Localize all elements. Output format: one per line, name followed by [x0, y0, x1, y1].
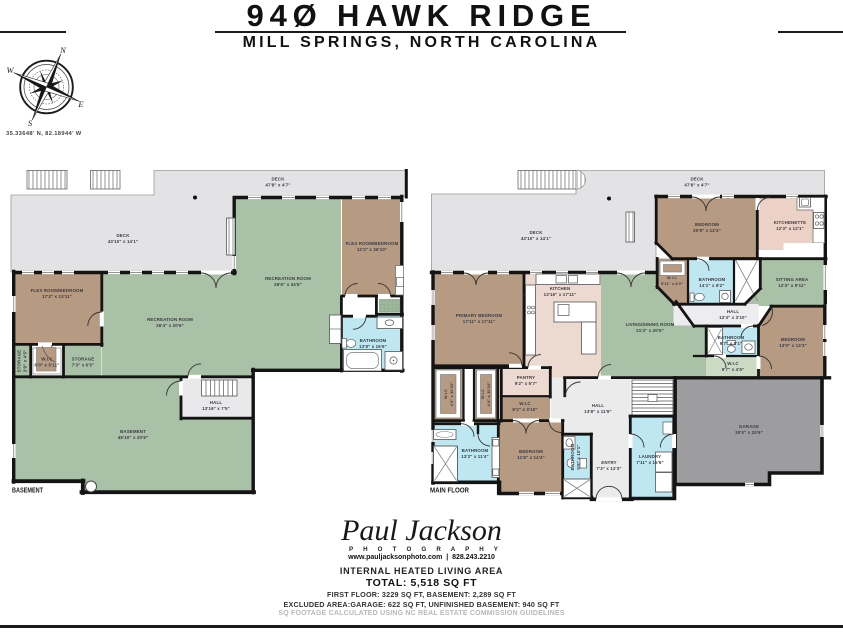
svg-text:11'8" x 14'4": 11'8" x 14'4": [517, 455, 545, 460]
svg-text:DECK: DECK: [529, 230, 543, 235]
svg-text:BASEMENT: BASEMENT: [12, 486, 43, 495]
svg-text:13'8" x 11'9": 13'8" x 11'9": [584, 409, 612, 414]
svg-text:9'7" x 4'5": 9'7" x 4'5": [722, 367, 745, 372]
svg-text:7'11" x 15'6": 7'11" x 15'6": [636, 460, 664, 465]
svg-text:20'8" x 12'4": 20'8" x 12'4": [693, 228, 721, 233]
svg-text:43'10" x 14'1": 43'10" x 14'1": [108, 239, 138, 244]
svg-text:26'6" x 34'6": 26'6" x 34'6": [274, 282, 302, 287]
svg-text:W.I.C: W.I.C: [480, 389, 485, 399]
svg-text:13'16" x 17'11": 13'16" x 17'11": [544, 292, 577, 297]
svg-text:12'8" x 16'6": 12'8" x 16'6": [359, 344, 387, 349]
svg-text:2'9" x 4'5": 2'9" x 4'5": [23, 350, 28, 373]
svg-text:SITTING AREA: SITTING AREA: [776, 277, 809, 282]
svg-text:DECK: DECK: [690, 177, 704, 182]
svg-text:MAIN FLOOR: MAIN FLOOR: [430, 486, 469, 495]
svg-text:BATHROOM: BATHROOM: [699, 277, 726, 282]
svg-text:17'2" x 13'11": 17'2" x 13'11": [42, 294, 72, 299]
svg-text:W.I.C: W.I.C: [519, 401, 531, 406]
svg-text:9'7" x 5'1": 9'7" x 5'1": [720, 341, 743, 346]
svg-text:KITCHENETTE: KITCHENETTE: [774, 220, 806, 225]
svg-text:E: E: [77, 99, 84, 109]
svg-text:12'3" x 3'10": 12'3" x 3'10": [719, 315, 747, 320]
svg-text:12'3" x 26'10": 12'3" x 26'10": [357, 247, 387, 252]
svg-text:N: N: [59, 45, 67, 55]
svg-text:W.I.C: W.I.C: [443, 389, 448, 399]
svg-text:35.33648' N, 82.18944' W: 35.33648' N, 82.18944' W: [6, 131, 82, 137]
svg-text:9'2" x 3'10": 9'2" x 3'10": [512, 407, 537, 412]
svg-text:W.I.C: W.I.C: [41, 357, 53, 362]
svg-text:RECREATION ROOM: RECREATION ROOM: [265, 276, 311, 281]
svg-text:W.I.C: W.I.C: [667, 275, 677, 280]
svg-text:BATHROOM: BATHROOM: [462, 448, 489, 453]
svg-text:KITCHEN: KITCHEN: [550, 286, 571, 291]
svg-text:12'3" x 12'1": 12'3" x 12'1": [776, 226, 804, 231]
svg-text:BATHROOM: BATHROOM: [360, 338, 387, 343]
svg-text:5'11" x 8'2": 5'11" x 8'2": [661, 281, 683, 286]
svg-text:ENTRY: ENTRY: [601, 460, 616, 465]
svg-text:BATHROOM: BATHROOM: [570, 443, 575, 470]
svg-text:DECK: DECK: [116, 233, 130, 238]
svg-text:RECREATION ROOM: RECREATION ROOM: [147, 317, 193, 322]
svg-text:13'0" x 13'3": 13'0" x 13'3": [779, 343, 807, 348]
svg-text:PANTRY: PANTRY: [517, 375, 535, 380]
svg-text:4'4" x 10'10": 4'4" x 10'10": [449, 382, 454, 407]
svg-text:W.I.C: W.I.C: [727, 361, 739, 366]
svg-text:W: W: [6, 65, 14, 75]
svg-text:13'16" x 7'5": 13'16" x 7'5": [202, 406, 230, 411]
svg-text:26'4" x 20'6": 26'4" x 20'6": [156, 323, 184, 328]
svg-text:17'11" x 17'11": 17'11" x 17'11": [463, 319, 495, 324]
svg-text:STORAGE: STORAGE: [72, 357, 95, 362]
svg-text:5'6" x 10'1": 5'6" x 10'1": [576, 444, 581, 469]
svg-text:BATHROOM: BATHROOM: [718, 335, 745, 340]
svg-text:13'2" x 11'4": 13'2" x 11'4": [461, 454, 489, 459]
svg-text:PRIMARY BEDROOM: PRIMARY BEDROOM: [456, 313, 503, 318]
svg-text:7'3" x 12'3": 7'3" x 12'3": [596, 466, 621, 471]
svg-text:14'1" x 8'2": 14'1" x 8'2": [699, 283, 724, 288]
svg-text:45'10" x 20'6": 45'10" x 20'6": [118, 435, 148, 440]
svg-text:LIVING/DINING ROOM: LIVING/DINING ROOM: [626, 322, 675, 327]
svg-text:BEDROOM: BEDROOM: [519, 449, 543, 454]
svg-text:30'0" x 20'9": 30'0" x 20'9": [735, 430, 763, 435]
svg-text:BEDROOM: BEDROOM: [781, 337, 805, 342]
svg-text:HALL: HALL: [727, 309, 739, 314]
svg-text:9'2" x 5'7": 9'2" x 5'7": [515, 381, 538, 386]
svg-text:43'10" x 14'1": 43'10" x 14'1": [521, 236, 551, 241]
svg-text:6'0" x 5'11": 6'0" x 5'11": [35, 363, 60, 368]
svg-text:HALL: HALL: [210, 400, 222, 405]
svg-text:47'8" x 4'7": 47'8" x 4'7": [684, 183, 709, 188]
svg-text:LAUNDRY: LAUNDRY: [639, 454, 661, 459]
svg-text:FLEX ROOM/BEDROOM: FLEX ROOM/BEDROOM: [346, 241, 399, 246]
svg-text:BASEMENT: BASEMENT: [120, 429, 146, 434]
svg-text:12'3" x 9'11": 12'3" x 9'11": [778, 283, 806, 288]
svg-text:STORAGE: STORAGE: [17, 350, 22, 373]
svg-text:BEDROOM: BEDROOM: [695, 222, 719, 227]
svg-text:GARAGE: GARAGE: [739, 424, 759, 429]
svg-text:4'4" x 10'10": 4'4" x 10'10": [486, 382, 491, 407]
svg-text:47'8" x 4'7": 47'8" x 4'7": [265, 183, 290, 188]
svg-text:DECK: DECK: [271, 177, 285, 182]
svg-text:7'3" x 6'5": 7'3" x 6'5": [72, 363, 95, 368]
svg-text:21'3" x 20'5": 21'3" x 20'5": [636, 328, 664, 333]
svg-text:FLEX ROOM/BEDROOM: FLEX ROOM/BEDROOM: [31, 288, 84, 293]
svg-text:HALL: HALL: [592, 403, 604, 408]
